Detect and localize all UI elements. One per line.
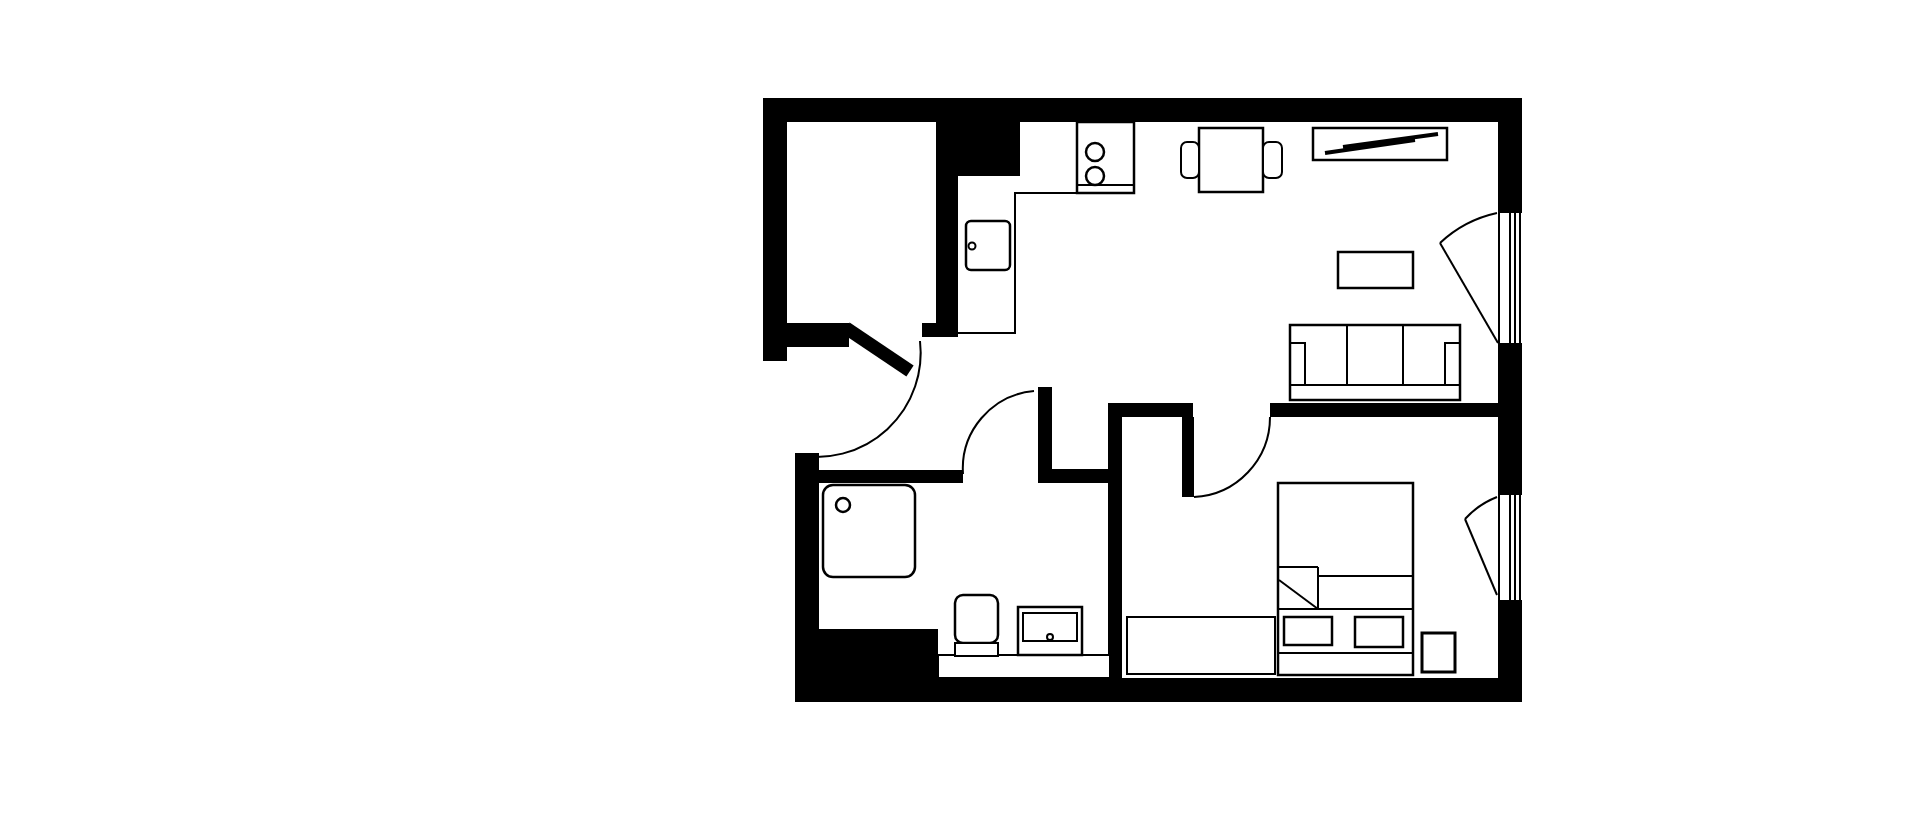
bathroom-corner-block (795, 629, 938, 689)
living-window-swing-arc (1440, 213, 1497, 243)
kitchen-wall-block (936, 122, 1020, 176)
exterior-wall-right-upper (1498, 98, 1522, 213)
bedroom-door-leaf (1182, 417, 1194, 497)
kitchen-sink-faucet-dot (969, 243, 976, 250)
sofa-body (1290, 325, 1460, 400)
apartment-floor-plan (0, 0, 1920, 839)
shower-drain (836, 498, 850, 512)
shower-tray (823, 485, 915, 577)
stove-burner-bottom (1086, 167, 1104, 185)
bathroom-sink-drain-dot (1047, 634, 1053, 640)
toilet-tank (955, 643, 998, 656)
bathroom-door-swing-arc (963, 391, 1034, 474)
closet-bottom-wall (787, 323, 849, 347)
dining-chair-right (1263, 142, 1282, 178)
dining-chair-left (1181, 142, 1199, 178)
dining-table (1199, 128, 1263, 192)
kitchen-stove (1077, 122, 1134, 193)
coffee-table (1338, 252, 1413, 288)
hall-wall-vertical (1038, 387, 1052, 483)
bedroom-window-swing-arc (1465, 497, 1497, 519)
bedroom-nightstand (1422, 633, 1455, 672)
floor-plan-canvas (0, 0, 1920, 839)
bedroom-top-wall (1270, 403, 1498, 417)
bedroom-window-casement-leaf (1465, 519, 1497, 595)
bed-pillow-left (1284, 617, 1332, 645)
bathroom-vanity-ledge (938, 655, 1110, 678)
exterior-wall-top (763, 98, 1522, 122)
bedroom-door-swing-arc (1194, 417, 1270, 497)
entry-door-leaf (846, 328, 910, 371)
exterior-wall-left-closet (763, 98, 787, 361)
hall-top-wall (1108, 403, 1193, 417)
bedroom-bench (1127, 617, 1275, 674)
toilet-bowl (955, 595, 998, 643)
bedroom-left-wall (1108, 403, 1122, 678)
bathroom-top-wall (819, 470, 963, 483)
stove-burner-top (1086, 143, 1104, 161)
bed-pillow-right (1355, 617, 1403, 647)
exterior-wall-right-middle (1498, 343, 1522, 495)
